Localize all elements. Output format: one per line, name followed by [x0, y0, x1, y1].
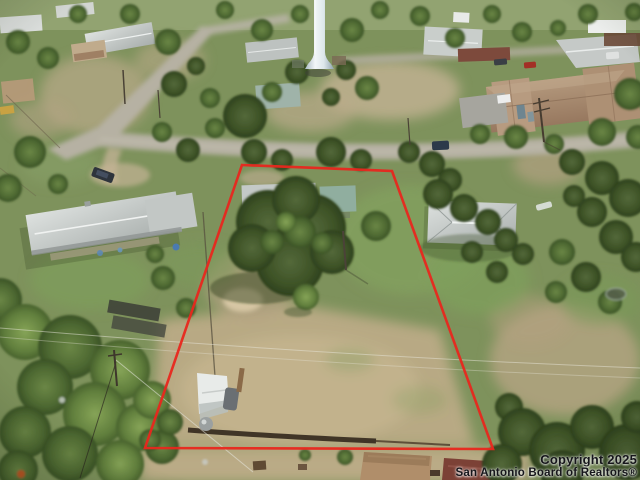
copyright-watermark: Copyright 2025 San Antonio Board of Real…	[456, 453, 637, 479]
aerial-photo-canvas	[0, 0, 640, 480]
aerial-photo: Copyright 2025 San Antonio Board of Real…	[0, 0, 640, 480]
dome-tank	[199, 417, 213, 431]
blue-barrel	[173, 244, 180, 251]
pickup-truck	[432, 141, 449, 151]
red-car	[524, 61, 536, 68]
white-suv	[606, 52, 619, 60]
small-tree-in-lot	[293, 284, 319, 310]
orange-object	[17, 470, 25, 478]
trampoline	[606, 288, 626, 300]
copyright-line-1: Copyright 2025	[456, 453, 637, 467]
tan-house-left-edge	[1, 78, 35, 103]
bottom-tan-building	[360, 452, 432, 480]
copyright-line-2: San Antonio Board of Realtors®	[456, 467, 637, 479]
debris	[253, 461, 267, 471]
white-van	[497, 94, 511, 104]
